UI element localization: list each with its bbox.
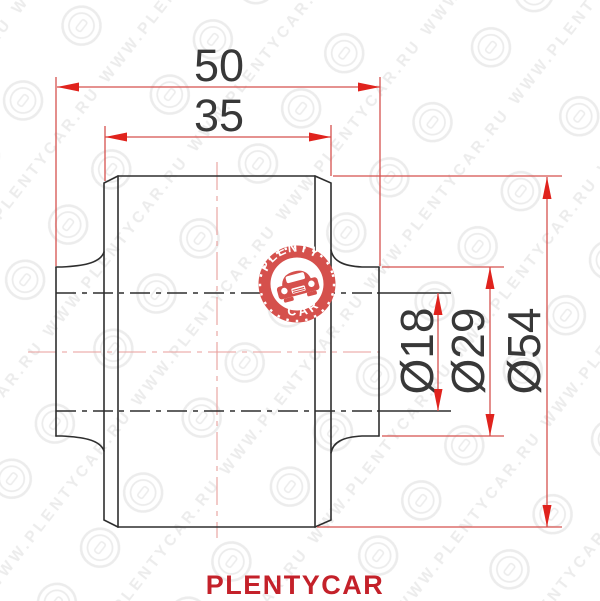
- arrowhead-down: [486, 414, 495, 436]
- arrowhead-left: [57, 83, 79, 92]
- arrowhead-up: [486, 267, 495, 289]
- arrowhead-right: [309, 133, 331, 142]
- centerlines: [28, 162, 380, 538]
- dim-label-sleeve-diameter: Ø29: [442, 308, 494, 395]
- drawing-layer: 50 35 Ø54 Ø29: [0, 0, 600, 601]
- plenty-car-logo: PLENTY CAR: [248, 231, 344, 331]
- dim-label-total-length: 50: [194, 40, 244, 91]
- dim-label-outer-diameter: Ø54: [498, 308, 550, 395]
- dimension-body-length: 35: [105, 90, 331, 181]
- technical-drawing-page: WWW.PLENTYCAR.RU: [0, 0, 600, 601]
- footer-brand: PLENTYCAR: [206, 570, 385, 600]
- arrowhead-right: [358, 83, 380, 92]
- dim-label-body-length: 35: [194, 90, 244, 141]
- dim-label-bore-diameter: Ø18: [391, 308, 443, 395]
- arrowhead-up: [543, 177, 552, 199]
- arrowhead-left: [105, 133, 127, 142]
- dimension-bore-diameter: Ø18: [391, 293, 443, 411]
- arrowhead-down: [543, 505, 552, 527]
